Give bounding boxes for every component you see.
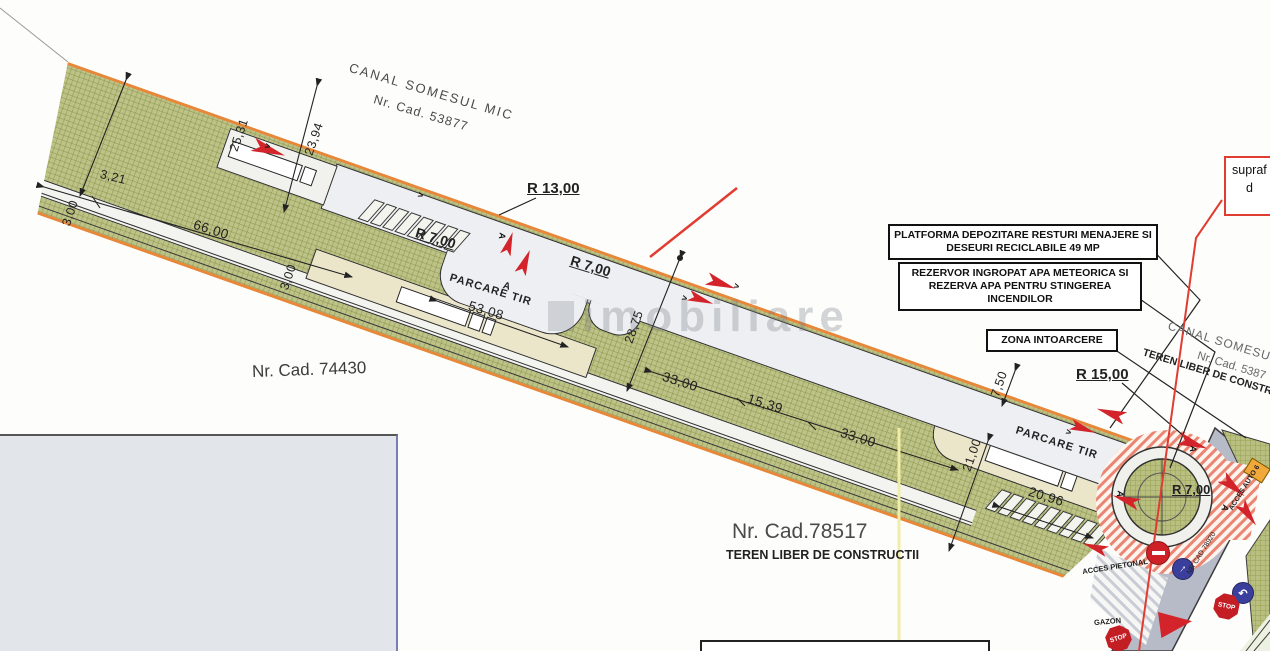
teren-liber-center-label: TEREN LIBER DE CONSTRUCTII [726,548,919,562]
radius-15-00: R 15,00 [1076,366,1129,383]
watermark-logo [548,301,574,331]
boundary-line [0,8,68,62]
cad-78517-label: Nr. Cad.78517 [732,520,867,544]
callout-zona-intoarcere: ZONA INTOARCERE [986,329,1118,352]
a-marker: A [1115,490,1126,498]
radius-13-00: R 13,00 [527,180,580,197]
radius-7-00-c: R 7,00 [1172,482,1210,497]
site-plan-canvas: imobiliare CANAL SOMESUL MIC Nr. Cad. 53… [0,0,1270,651]
suprafata-line2: d [1232,180,1270,198]
a-marker: A [497,232,508,240]
suprafata-line1: supraf [1232,162,1270,180]
a-marker: A [1188,445,1199,453]
no-entry-sign [1146,541,1170,565]
callout-platforma: PLATFORMA DEPOZITARE RESTURI MENAJERE SI… [888,224,1158,260]
legend-box [700,640,990,651]
arrow-turn-icon: ↶ [1238,587,1247,600]
callout-rezervor: REZERVOR INGROPAT APA METEORICA SI REZER… [898,262,1142,311]
cad-74430-label: Nr. Cad. 74430 [252,358,367,382]
suprafata-note-box: supraf d [1224,156,1270,216]
